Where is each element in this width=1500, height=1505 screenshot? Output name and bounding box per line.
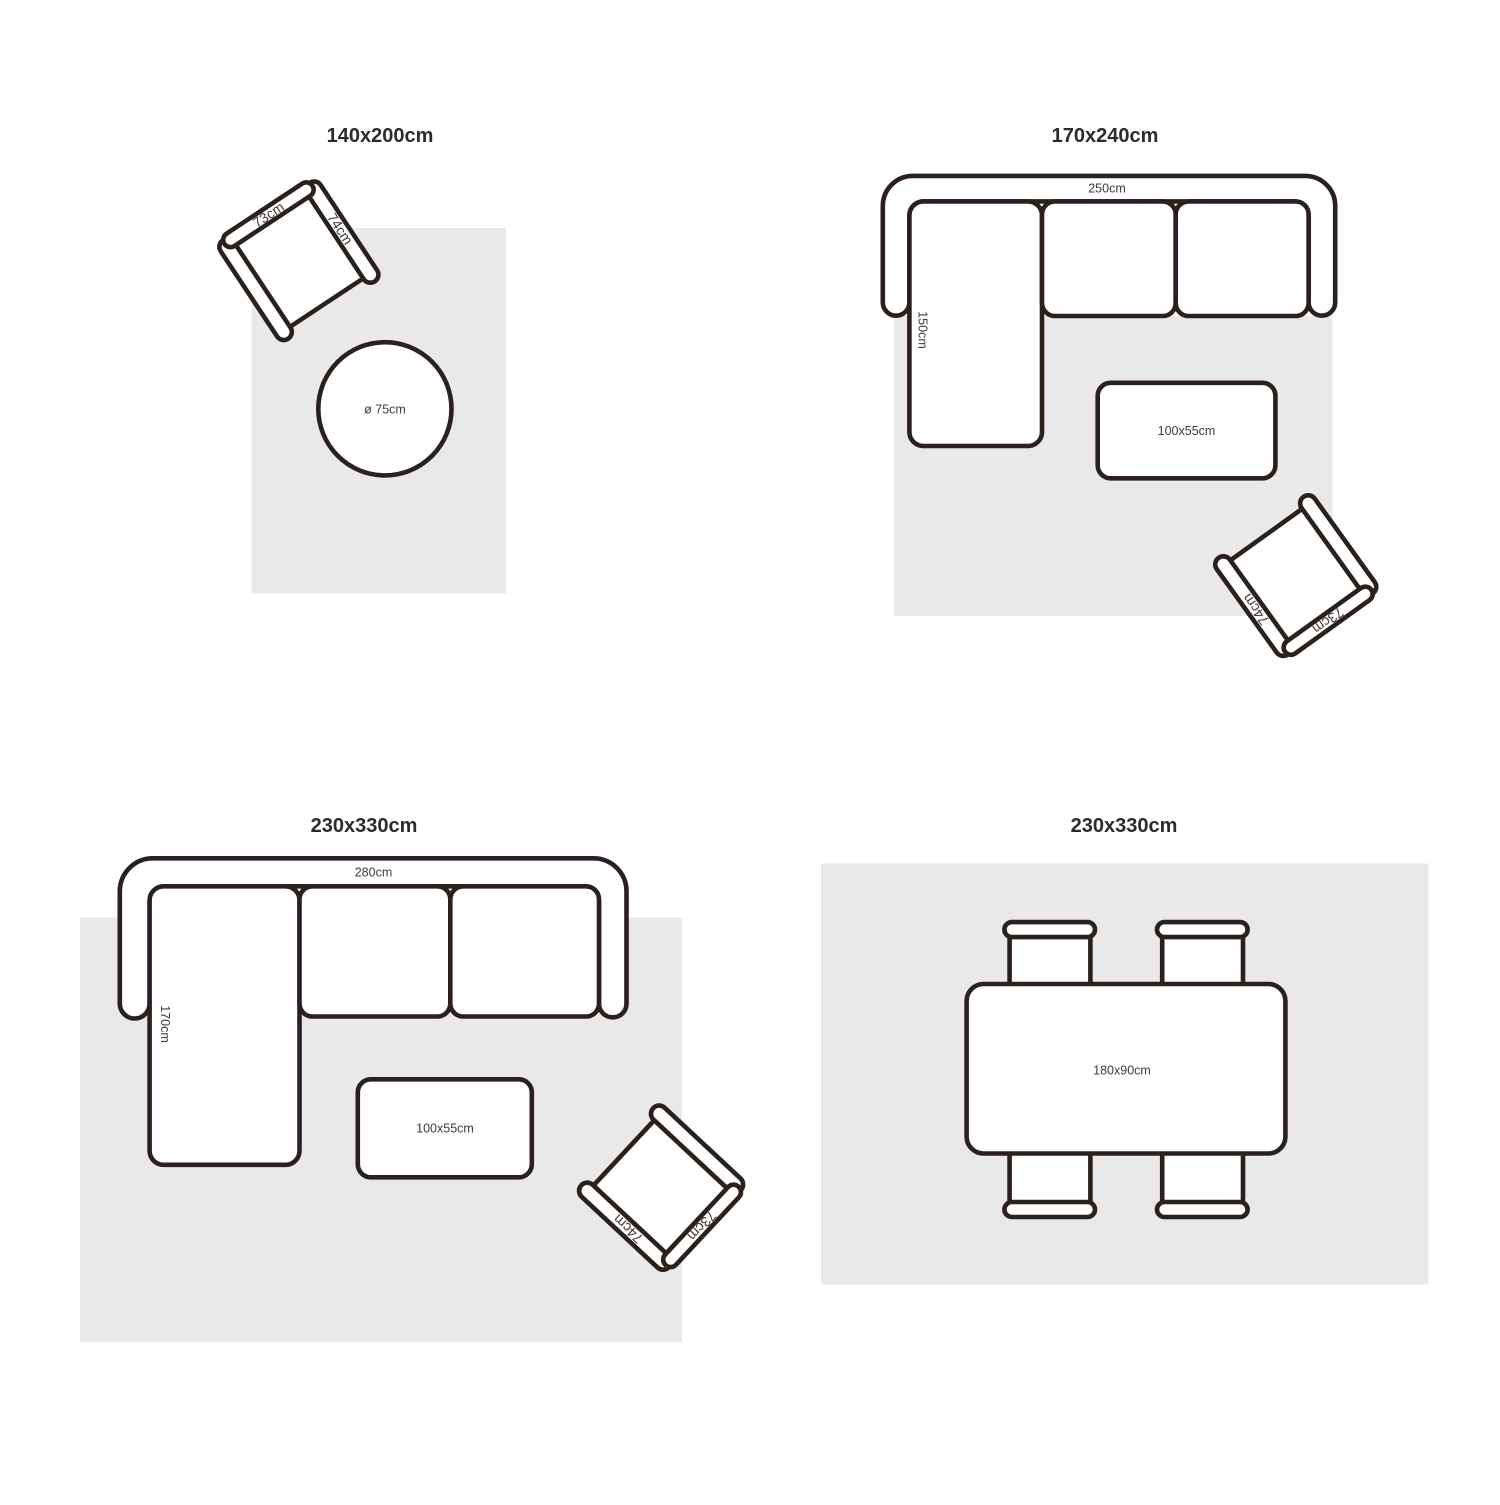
svg-text:280cm: 280cm bbox=[355, 866, 393, 880]
svg-text:170cm: 170cm bbox=[158, 1005, 172, 1043]
svg-text:230x330cm: 230x330cm bbox=[1071, 815, 1178, 837]
svg-text:150cm: 150cm bbox=[916, 311, 930, 349]
svg-text:180x90cm: 180x90cm bbox=[1093, 1063, 1151, 1077]
svg-text:100x55cm: 100x55cm bbox=[1158, 424, 1216, 438]
svg-text:100x55cm: 100x55cm bbox=[416, 1121, 474, 1135]
svg-text:230x330cm: 230x330cm bbox=[311, 815, 418, 837]
svg-text:250cm: 250cm bbox=[1088, 182, 1126, 196]
svg-text:ø 75cm: ø 75cm bbox=[364, 403, 406, 417]
svg-text:170x240cm: 170x240cm bbox=[1052, 125, 1159, 147]
svg-text:140x200cm: 140x200cm bbox=[327, 125, 434, 147]
